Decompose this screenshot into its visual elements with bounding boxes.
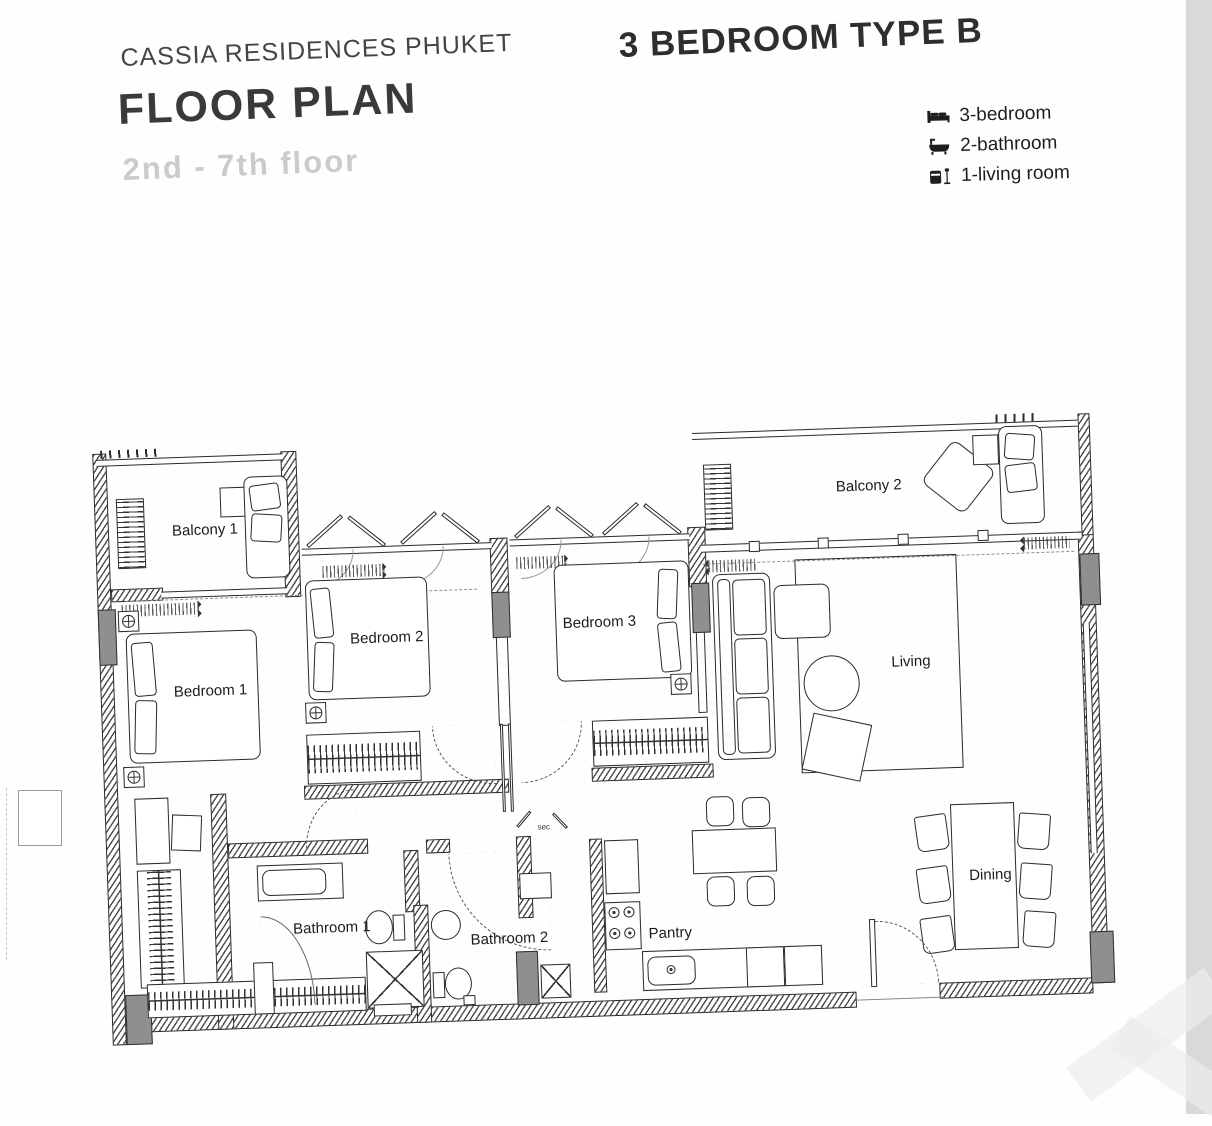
column	[98, 609, 118, 666]
lounger-cushion	[250, 513, 282, 543]
shaft-access-panel	[374, 1003, 412, 1016]
lounger-cushion	[1004, 462, 1038, 494]
ac-unit	[116, 498, 146, 569]
curtain	[1024, 536, 1070, 550]
pocket-door-leaf	[500, 724, 506, 812]
armchair-icon	[928, 166, 953, 187]
floor-plan: sec Balcony 1 Balcony 2 Bedroom 1 Bedroo…	[92, 413, 1118, 1054]
chair	[1017, 812, 1051, 850]
dressing-table	[134, 798, 170, 865]
room-label-balcony2: Balcony 2	[836, 476, 902, 495]
bifold-door-leaf	[555, 506, 594, 537]
room-label-bathroom2: Bathroom 2	[470, 929, 548, 949]
legend-item-bedrooms: 3-bedroom	[926, 98, 1069, 132]
curtain	[322, 564, 384, 578]
toilet-tank	[392, 914, 405, 940]
bathtub-basin	[262, 868, 327, 896]
page-title: FLOOR PLAN	[117, 75, 418, 135]
side-table	[972, 434, 999, 465]
legend-label: 3-bedroom	[959, 103, 1051, 128]
unit-type-title: 3 BEDROOM TYPE B	[618, 11, 983, 66]
stool	[171, 814, 202, 851]
room-label-bedroom1: Bedroom 1	[174, 681, 248, 701]
room-label-balcony1: Balcony 1	[172, 520, 238, 539]
wash-basin	[430, 909, 461, 940]
wall-bed3-living-lower	[696, 631, 708, 713]
wall-bottom-dining	[939, 977, 1093, 998]
room-label-bathroom1: Bathroom 1	[293, 918, 371, 938]
column	[516, 951, 540, 1006]
column	[691, 583, 711, 634]
scan-artifact-line	[6, 788, 7, 960]
threshold-line	[857, 997, 944, 1001]
floor-range-subtitle: 2nd - 7th floor	[122, 143, 360, 188]
chair	[1018, 862, 1052, 900]
legend: 3-bedroom 2-bathroom 1-living room	[926, 98, 1070, 192]
window-mullion	[818, 537, 829, 548]
wardrobe	[137, 869, 185, 988]
bifold-door-leaf	[441, 512, 480, 543]
column-marker	[123, 766, 145, 788]
ac-unit	[703, 464, 733, 531]
hatch-mark	[516, 811, 531, 828]
bed-pillow	[134, 700, 157, 754]
legend-label: 1-living room	[961, 162, 1070, 187]
hatch-mark	[552, 813, 568, 829]
floor-cushion	[802, 713, 873, 782]
bifold-door-leaf	[347, 516, 386, 547]
chair	[915, 865, 952, 905]
wardrobe	[592, 717, 710, 767]
duct-shaft	[540, 964, 571, 999]
bifold-door-leaf	[514, 505, 551, 539]
wall-bed3-wardrobe-back	[591, 764, 713, 782]
legend-item-living: 1-living room	[928, 158, 1071, 192]
door-arc-bedroom3	[520, 721, 584, 783]
bed-pillow	[130, 641, 157, 697]
counter-cabinet	[746, 946, 785, 987]
lounger-cushion	[248, 482, 281, 512]
scanner-edge-band	[1186, 0, 1212, 1114]
sofa-cushion	[736, 697, 771, 754]
chair	[914, 813, 951, 853]
bathtub-icon	[927, 136, 952, 157]
slide-arrow	[701, 568, 709, 576]
lounger-cushion	[1004, 433, 1036, 461]
column-marker	[670, 673, 692, 695]
window-mullion	[749, 541, 760, 552]
door-arc-bedroom2	[432, 724, 496, 786]
bifold-door-leaf	[306, 514, 343, 548]
armchair-ottoman	[773, 583, 831, 639]
legend-item-bathrooms: 2-bathroom	[927, 128, 1070, 162]
scanned-floor-plan-page: { "header": { "project": "CASSIA RESIDEN…	[0, 0, 1212, 1114]
breakfast-table	[692, 827, 777, 874]
slide-arrow	[198, 609, 206, 617]
sofa-cushion	[732, 579, 767, 636]
wall-bed3-living-divider	[687, 527, 707, 588]
bifold-door-leaf	[643, 503, 682, 534]
legend-label: 2-bathroom	[960, 132, 1058, 157]
floor-drain	[463, 995, 475, 1005]
sofa-cushion	[734, 638, 769, 695]
wall-balcony2-right	[1077, 413, 1093, 535]
adjacent-unit-fragment	[18, 790, 62, 846]
room-label-bedroom3: Bedroom 3	[562, 613, 636, 633]
project-name: CASSIA RESIDENCES PHUKET	[120, 29, 513, 73]
chair	[706, 876, 735, 907]
column	[491, 592, 511, 639]
slide-arrow	[197, 600, 205, 608]
counter-cabinet	[784, 945, 823, 986]
window-mullion	[897, 534, 908, 545]
room-label-bedroom2: Bedroom 2	[350, 628, 424, 648]
column	[1089, 931, 1115, 984]
column-marker	[118, 610, 140, 632]
room-label-living: Living	[891, 652, 931, 670]
bed-icon	[926, 106, 951, 127]
bed-pillow	[313, 642, 335, 693]
column	[1079, 553, 1101, 606]
curtain	[708, 559, 756, 573]
room-label-pantry: Pantry	[648, 924, 692, 943]
window-mullion	[977, 530, 988, 541]
wall-bath2-top-stub	[426, 839, 450, 854]
wall-corridor-stub	[496, 636, 511, 726]
bifold-door-leaf	[602, 502, 639, 536]
room-label-dining: Dining	[969, 866, 1012, 884]
railing-ticks	[995, 413, 1035, 422]
pocket-door-leaf	[508, 724, 514, 812]
toilet-tank	[433, 972, 446, 998]
column-marker	[305, 702, 327, 724]
side-table	[219, 487, 246, 518]
chair	[706, 796, 735, 827]
chair	[742, 797, 771, 828]
chair	[1022, 910, 1056, 948]
wall-bath1-right-stub	[403, 850, 420, 912]
chair	[746, 875, 775, 906]
fridge	[604, 839, 640, 894]
service-shaft	[366, 950, 425, 1009]
bed-pillow	[657, 569, 679, 620]
bifold-door-leaf	[400, 511, 437, 545]
wall-bed2-bed3-divider	[489, 538, 509, 597]
wardrobe	[306, 731, 422, 785]
shaft-note: sec	[537, 822, 550, 831]
